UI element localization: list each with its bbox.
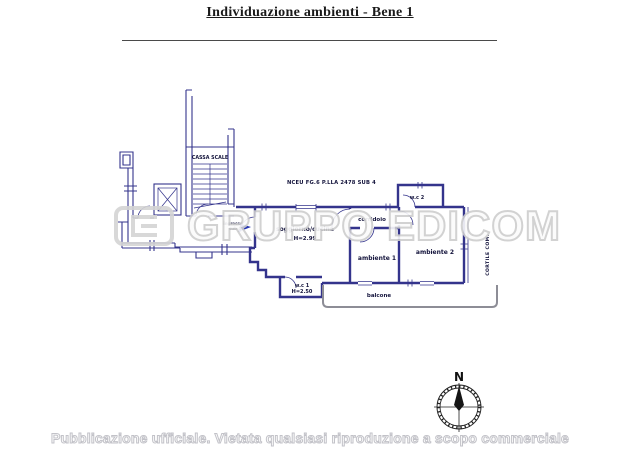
balcony-outline	[323, 285, 497, 307]
label-wc2: w.c 2	[410, 195, 425, 201]
label-corridor: corridoio	[358, 217, 386, 223]
floor-plan-drawing: CASSA SCALE NCEU FG.6 P.LLA 2478 SUB 4 s…	[0, 0, 620, 450]
label-living-kitchen-height: H=2.99	[294, 236, 317, 242]
windows-and-ticks	[262, 182, 468, 287]
label-living-kitchen: soggiorno/cucina	[276, 226, 334, 233]
label-cadastral-ref: NCEU FG.6 P.LLA 2478 SUB 4	[287, 180, 376, 186]
label-room1: ambiente 1	[358, 255, 396, 262]
compass-north-label: N	[454, 370, 464, 384]
compass-rose: N	[434, 370, 484, 432]
room-labels: CASSA SCALE NCEU FG.6 P.LLA 2478 SUB 4 s…	[192, 155, 491, 299]
apartment-walls	[236, 185, 464, 297]
label-stairwell: CASSA SCALE	[192, 155, 228, 161]
label-entrance-sub: sub 4	[229, 226, 241, 231]
stairwell-walls	[186, 90, 234, 216]
document-page: Individuazione ambienti - Bene 1	[0, 0, 620, 450]
elevator-shaft	[154, 184, 181, 215]
door-arcs	[138, 195, 415, 288]
label-wc1-height: H=2.50	[292, 289, 313, 295]
common-area-walls	[118, 152, 252, 258]
stairs	[193, 164, 227, 208]
label-room2: ambiente 2	[416, 249, 454, 256]
footer-notice: Pubblicazione ufficiale. Vietata qualsia…	[0, 430, 620, 446]
label-courtyard: CORTILE COM.	[485, 234, 491, 276]
label-balcony: balcone	[367, 293, 391, 299]
